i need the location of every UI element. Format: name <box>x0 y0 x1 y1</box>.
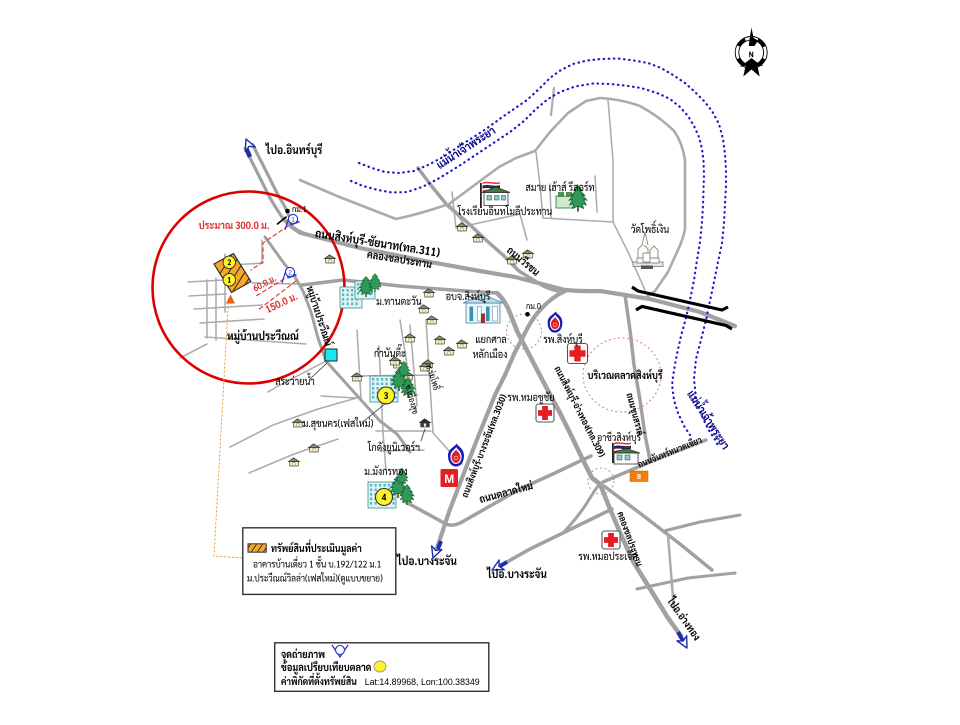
svg-text:Lat:14.89968, Lon:100.38349: Lat:14.89968, Lon:100.38349 <box>365 677 480 687</box>
svg-text:M: M <box>444 472 454 486</box>
svg-text:2: 2 <box>288 269 292 276</box>
svg-text:8: 8 <box>637 472 641 481</box>
svg-text:1: 1 <box>291 216 295 223</box>
